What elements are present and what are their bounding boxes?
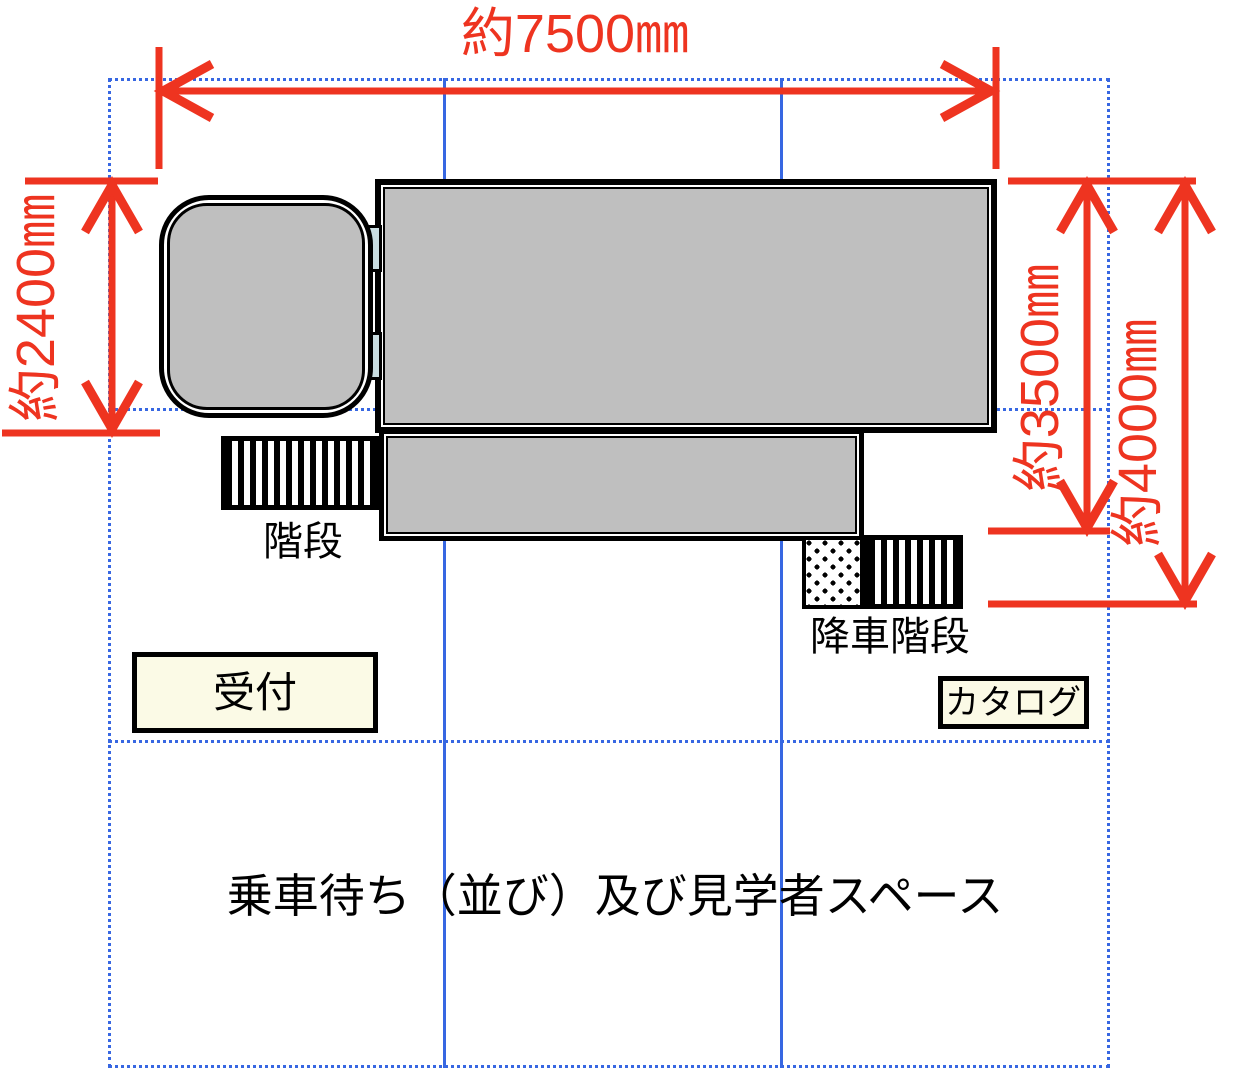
reception-label: 受付 bbox=[213, 672, 297, 714]
grid-hline-lower bbox=[108, 740, 1110, 743]
exit-platform-dotted bbox=[802, 536, 864, 609]
exit-stairs-label: 降車階段 bbox=[810, 617, 970, 657]
catalog-label: カタログ bbox=[945, 686, 1081, 720]
dim-width-label: 約7500㎜ bbox=[461, 7, 689, 61]
vehicle-cab-fill bbox=[167, 203, 365, 410]
floor-plan: 階段 降車階段 受付 カタログ 乗車待ち（並び）及び見学者スペース bbox=[0, 0, 1246, 1082]
vehicle-main-body bbox=[375, 179, 997, 433]
waiting-area-label: 乗車待ち（並び）及び見学者スペース bbox=[227, 873, 1003, 919]
vehicle-lower-deck bbox=[379, 429, 864, 541]
exit-stairs bbox=[864, 535, 963, 609]
boarding-stairs bbox=[221, 436, 379, 510]
vehicle-cab bbox=[159, 195, 373, 418]
vehicle-main-body-fill bbox=[383, 187, 989, 425]
vehicle-lower-deck-fill bbox=[386, 436, 857, 534]
dim-body-height-label: 約3500㎜ bbox=[1013, 264, 1067, 492]
dim-cab-height-label: 約2400㎜ bbox=[9, 194, 63, 422]
boarding-stairs-label: 階段 bbox=[263, 522, 343, 562]
dim-total-height-label: 約4000㎜ bbox=[1111, 319, 1165, 547]
